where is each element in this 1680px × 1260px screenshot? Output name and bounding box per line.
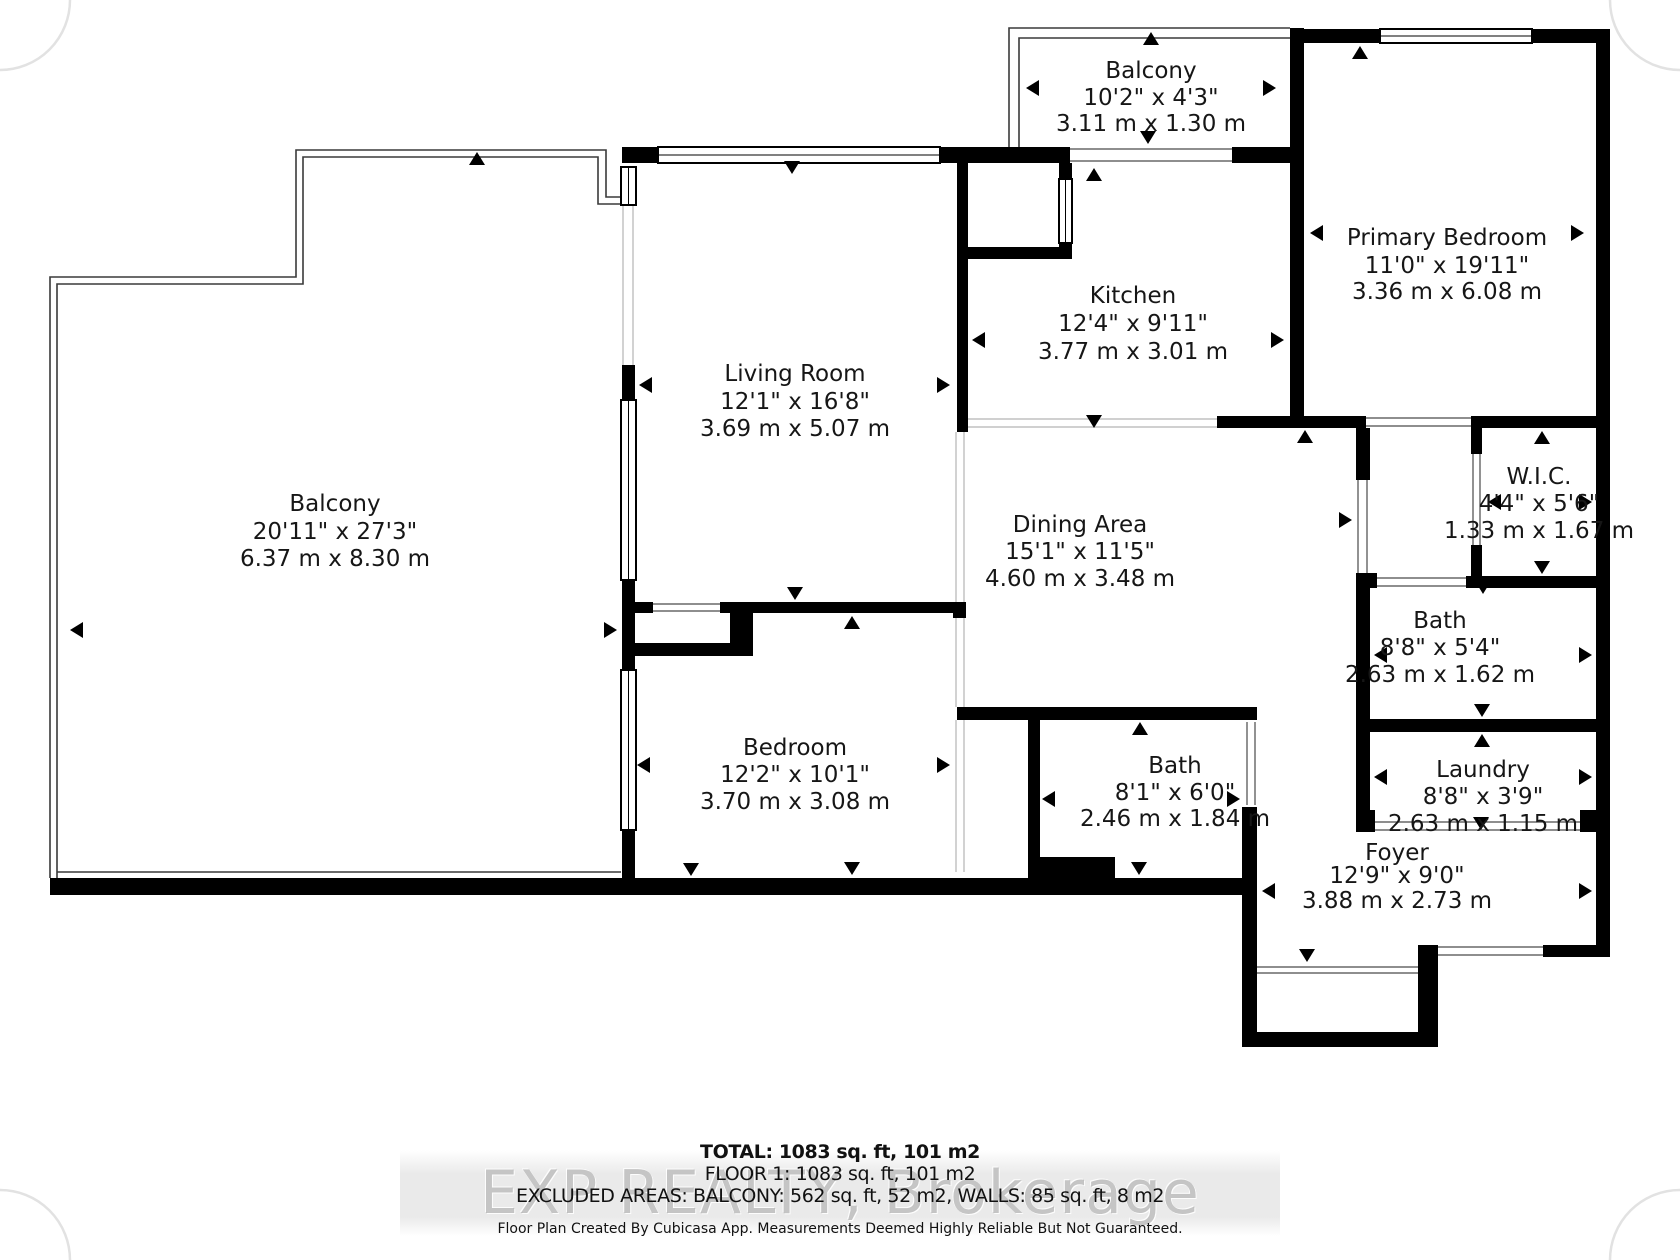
room-label-bath-second: Bath 8'1" x 6'0" 2.46 m x 1.84 m [1080, 753, 1270, 832]
room-label-kitchen: Kitchen 12'4" x 9'11" 3.77 m x 3.01 m [1038, 283, 1228, 365]
svg-text:12'4" x 9'11": 12'4" x 9'11" [1058, 311, 1208, 337]
floor-area-text: FLOOR 1: 1083 sq. ft, 101 m2 [0, 1163, 1680, 1185]
svg-text:Kitchen: Kitchen [1090, 283, 1176, 309]
svg-text:Balcony: Balcony [289, 491, 380, 517]
left-balcony-inner-line [57, 157, 621, 878]
svg-text:8'1" x 6'0": 8'1" x 6'0" [1115, 780, 1236, 806]
living-room-left-window [621, 400, 636, 580]
svg-text:Bath: Bath [1413, 608, 1466, 634]
room-label-living-room: Living Room 12'1" x 16'8" 3.69 m x 5.07 … [700, 361, 890, 442]
total-area-text: TOTAL: 1083 sq. ft, 101 m2 [0, 1141, 1680, 1163]
svg-text:3.77 m x 3.01 m: 3.77 m x 3.01 m [1038, 339, 1228, 365]
svg-text:15'1" x 11'5": 15'1" x 11'5" [1005, 539, 1155, 565]
living-room-top-window [658, 147, 940, 163]
svg-text:3.36 m x 6.08 m: 3.36 m x 6.08 m [1352, 279, 1542, 305]
svg-text:Primary Bedroom: Primary Bedroom [1347, 225, 1547, 251]
svg-text:Dining Area: Dining Area [1013, 512, 1148, 538]
svg-text:Bath: Bath [1148, 753, 1201, 779]
living-room-left-window-small [621, 167, 636, 205]
svg-text:Living Room: Living Room [724, 361, 865, 387]
svg-text:Laundry: Laundry [1436, 757, 1530, 783]
room-labels: Balcony 10'2" x 4'3" 3.11 m x 1.30 m Pri… [240, 58, 1634, 914]
room-label-foyer: Foyer 12'9" x 9'0" 3.88 m x 2.73 m [1302, 840, 1492, 914]
kitchen-shaft-window [1059, 179, 1072, 243]
svg-text:20'11" x 27'3": 20'11" x 27'3" [253, 519, 417, 545]
room-label-laundry: Laundry 8'8" x 3'9" 2.63 m x 1.15 m [1388, 757, 1578, 837]
svg-text:12'2" x 10'1": 12'2" x 10'1" [720, 762, 870, 788]
room-label-balcony-left: Balcony 20'11" x 27'3" 6.37 m x 8.30 m [240, 491, 430, 572]
floor-plan-drawing: Balcony 10'2" x 4'3" 3.11 m x 1.30 m Pri… [0, 0, 1680, 1260]
svg-text:2.46 m x 1.84 m: 2.46 m x 1.84 m [1080, 806, 1270, 832]
room-label-bedroom: Bedroom 12'2" x 10'1" 3.70 m x 3.08 m [700, 735, 890, 815]
svg-text:4'4" x 5'6": 4'4" x 5'6" [1479, 491, 1600, 517]
svg-text:12'9" x 9'0": 12'9" x 9'0" [1329, 863, 1464, 889]
svg-text:W.I.C.: W.I.C. [1507, 464, 1572, 490]
room-label-dining-area: Dining Area 15'1" x 11'5" 4.60 m x 3.48 … [985, 512, 1175, 592]
svg-text:8'8" x 3'9": 8'8" x 3'9" [1423, 784, 1544, 810]
svg-text:3.88 m x 2.73 m: 3.88 m x 2.73 m [1302, 888, 1492, 914]
svg-text:12'1" x 16'8": 12'1" x 16'8" [720, 389, 870, 415]
room-label-bath-main: Bath 8'8" x 5'4" 2.63 m x 1.62 m [1345, 608, 1535, 688]
svg-text:11'0" x 19'11": 11'0" x 19'11" [1365, 253, 1529, 279]
svg-text:1.33 m x 1.67 m: 1.33 m x 1.67 m [1444, 518, 1634, 544]
svg-text:Balcony: Balcony [1105, 58, 1196, 84]
primary-bedroom-window [1380, 29, 1532, 43]
svg-text:4.60 m x 3.48 m: 4.60 m x 3.48 m [985, 566, 1175, 592]
svg-text:10'2" x 4'3": 10'2" x 4'3" [1083, 85, 1218, 111]
svg-text:8'8" x 5'4": 8'8" x 5'4" [1380, 635, 1501, 661]
svg-text:Bedroom: Bedroom [743, 735, 847, 761]
room-label-primary-bedroom: Primary Bedroom 11'0" x 19'11" 3.36 m x … [1347, 225, 1547, 305]
area-summary: TOTAL: 1083 sq. ft, 101 m2 FLOOR 1: 1083… [0, 1141, 1680, 1238]
bedroom-left-window [621, 670, 636, 830]
svg-text:2.63 m x 1.62 m: 2.63 m x 1.62 m [1345, 662, 1535, 688]
disclaimer-text: Floor Plan Created By Cubicasa App. Meas… [0, 1220, 1680, 1238]
room-label-balcony-top: Balcony 10'2" x 4'3" 3.11 m x 1.30 m [1056, 58, 1246, 137]
svg-text:2.63 m x 1.15 m: 2.63 m x 1.15 m [1388, 811, 1578, 837]
excluded-areas-text: EXCLUDED AREAS: BALCONY: 562 sq. ft, 52 … [0, 1185, 1680, 1207]
svg-text:6.37 m x 8.30 m: 6.37 m x 8.30 m [240, 546, 430, 572]
svg-text:3.11 m x 1.30 m: 3.11 m x 1.30 m [1056, 111, 1246, 137]
svg-text:3.69 m x 5.07 m: 3.69 m x 5.07 m [700, 416, 890, 442]
floor-plan-canvas: EXP REALTY, Brokerage [0, 0, 1680, 1260]
svg-text:3.70 m x 3.08 m: 3.70 m x 3.08 m [700, 789, 890, 815]
